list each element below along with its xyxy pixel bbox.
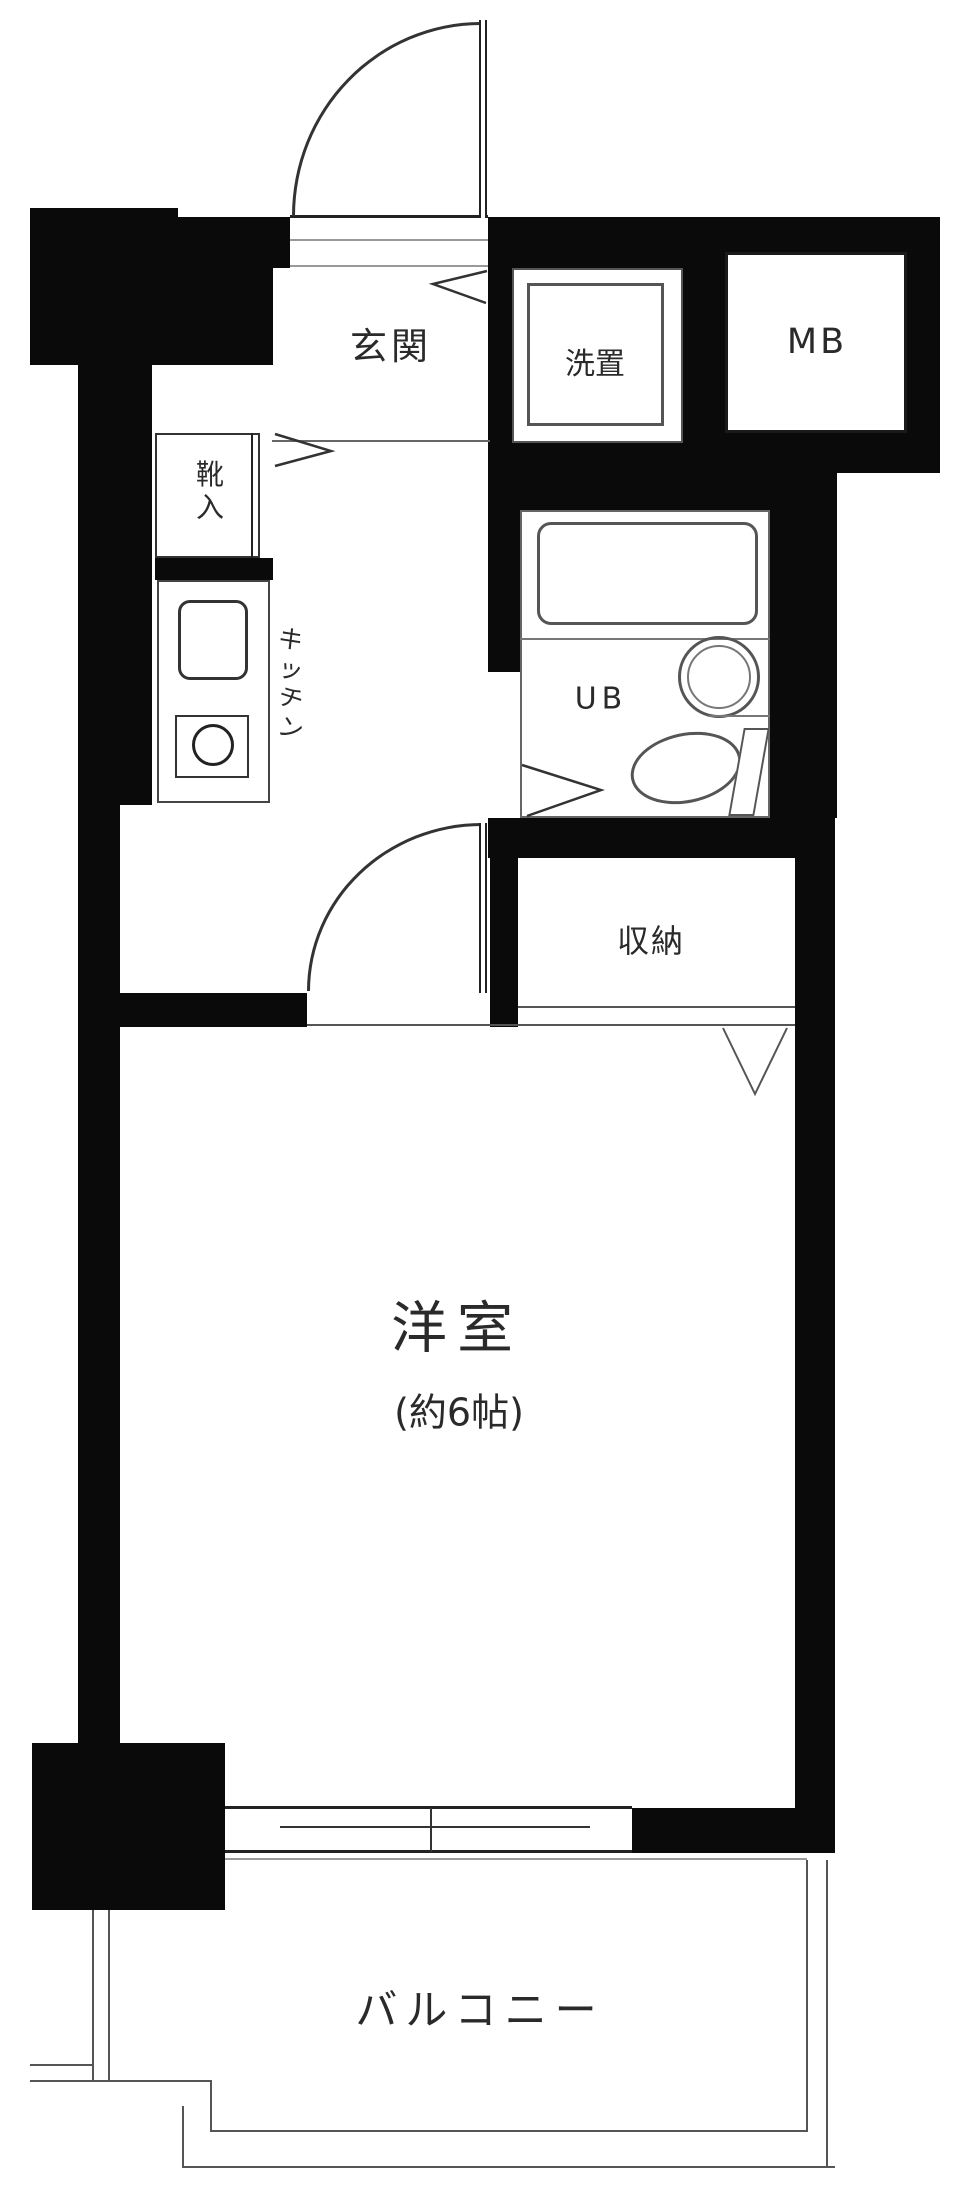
western-room-label: 洋室 — [391, 1284, 523, 1365]
wall-left-lower — [78, 805, 120, 1743]
meter-box-label: MB — [787, 322, 847, 362]
wall-right-of-unit-bath — [770, 473, 837, 818]
storage-bottom-line — [518, 1006, 795, 1008]
genkan-right-opening-mark — [433, 271, 487, 303]
wall-left-of-genkan — [178, 268, 273, 365]
entrance-door-arc — [292, 22, 481, 216]
entrance-step-line-1 — [290, 239, 488, 241]
balcony-fence-left-h2 — [30, 2080, 212, 2082]
wall-above-unit-bath — [520, 473, 770, 510]
kitchen-char-4: ン — [274, 710, 307, 746]
window-inner-line — [225, 1850, 632, 1853]
shoe-cabinet-char-1: 靴 — [196, 458, 224, 491]
room-door-panel — [479, 823, 487, 993]
western-room-size-label: (約6帖) — [394, 1382, 524, 1437]
floor-plan: 玄関 靴 入 キ ッ チ ン 洗置 MB UB 収納 洋室 (約6帖) — [0, 0, 960, 2195]
wall-top-left-block — [30, 208, 178, 365]
storage-label: 収納 — [617, 916, 685, 962]
kitchen-char-2: ッ — [274, 651, 307, 687]
balcony-fence-right-inner — [806, 1860, 808, 2132]
genkan-step-edge — [272, 440, 490, 442]
window-glass-line — [280, 1826, 590, 1828]
washbasin-counter-line — [708, 715, 770, 717]
wall-left-upper — [78, 365, 152, 805]
balcony-fence-bottom-inner — [210, 2130, 808, 2132]
wall-right-main — [795, 858, 835, 1808]
wall-below-shoe-cabinet — [155, 558, 273, 580]
wall-room-top — [120, 993, 307, 1027]
window-mullion — [430, 1808, 432, 1852]
washbasin-inner — [687, 645, 751, 709]
shoe-cabinet-door-line — [251, 433, 253, 558]
room-door-arc — [307, 823, 482, 991]
genkan-label: 玄関 — [350, 316, 432, 370]
balcony-label: バルコニー — [355, 1977, 604, 2038]
bathtub — [537, 522, 758, 625]
balcony-fence-right-outer — [826, 1860, 828, 2168]
wall-bottom-right-band — [632, 1808, 835, 1853]
kitchen-label: キ ッ チ ン — [278, 625, 303, 743]
entrance-door-panel — [479, 20, 487, 218]
balcony-fence-left-h1 — [30, 2064, 92, 2066]
laundry-label: 洗置 — [565, 339, 625, 383]
kitchen-char-3: チ — [274, 681, 307, 717]
kitchen-char-1: キ — [274, 622, 307, 658]
balcony-partition — [92, 1910, 110, 2082]
balcony-fence-bottom-outer — [182, 2166, 835, 2168]
genkan-step-opening-mark — [275, 434, 331, 466]
window-outer-line — [225, 1806, 632, 1809]
unit-bath-label: UB — [575, 682, 628, 717]
shoe-cabinet-char-2: 入 — [196, 491, 224, 524]
wall-top-left-of-door — [178, 217, 290, 268]
kitchen-burner-icon — [192, 724, 234, 766]
storage-track-line — [307, 1024, 795, 1026]
entrance-step-line-2 — [290, 265, 488, 267]
room-window-swing-mark — [723, 1028, 787, 1094]
wall-below-unit-bath — [488, 818, 835, 858]
shoe-cabinet-label: 靴 入 — [196, 458, 224, 524]
wall-room-door-jamb — [490, 993, 518, 1027]
entrance-opening — [290, 217, 488, 268]
balcony-fence-step-v1 — [210, 2080, 212, 2132]
balcony-fence-step-v2 — [182, 2106, 184, 2168]
balcony-top-edge-line — [225, 1858, 807, 1860]
kitchen-sink — [178, 600, 248, 680]
wall-bottom-left-block — [32, 1743, 225, 1910]
